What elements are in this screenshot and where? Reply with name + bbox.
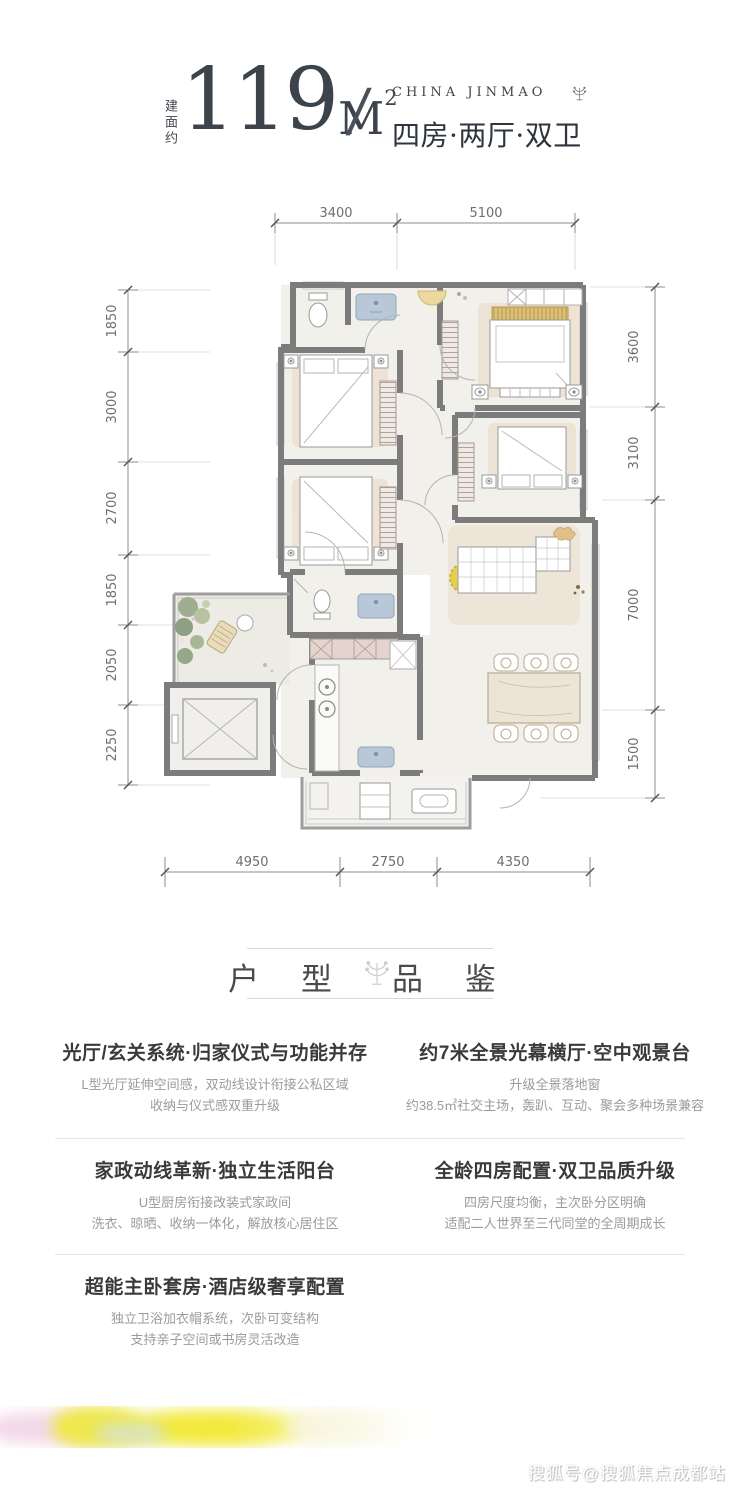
feature-title: 光厅/玄关系统·归家仪式与功能并存: [55, 1038, 375, 1065]
feature-block-4: 全龄四房配置·双卫品质升级 四房尺度均衡，主次卧分区明确 适配二人世界至三代同堂…: [390, 1156, 720, 1234]
poster-page: 建面约 119 M 2 / CHINA JINMAO 四房·两厅·双卫: [0, 0, 740, 1494]
floorplan-svg: 3400 5100 1850 3000 2700 1850 2050 2250: [60, 195, 680, 900]
dim-label-top-2: 5100: [469, 206, 502, 221]
section-title-left: 户 型: [228, 954, 348, 999]
feature-line: 收纳与仪式感双重升级: [150, 1098, 280, 1113]
feature-title: 全龄四房配置·双卫品质升级: [390, 1156, 720, 1183]
dim-label-bottom-2: 2750: [371, 855, 404, 870]
feature-line: 约38.5㎡社交主场，轰趴、互动、聚会多种场景兼容: [406, 1098, 704, 1113]
feature-line: 适配二人世界至三代同堂的全周期成长: [444, 1216, 665, 1231]
dimension-top: 3400 5100: [271, 206, 579, 270]
dim-label-bottom-1: 4950: [235, 855, 268, 870]
feature-block-2: 约7米全景光幕横厅·空中观景台 升级全景落地窗 约38.5㎡社交主场，轰趴、互动…: [390, 1038, 720, 1116]
feature-block-3: 家政动线革新·独立生活阳台 U型厨房衔接改装式家政间 洗衣、晾晒、收纳一体化，解…: [55, 1156, 375, 1234]
dim-label-left-6: 2250: [105, 728, 120, 761]
feature-line: 支持亲子空间或书房灵活改造: [130, 1332, 299, 1347]
dimension-bottom: 4950 2750 4350: [161, 855, 594, 887]
feature-line: 洗衣、晾晒、收纳一体化，解放核心居住区: [91, 1216, 338, 1231]
dim-label-left-4: 1850: [105, 573, 120, 606]
brand-name: CHINA JINMAO: [392, 85, 546, 100]
brand-row: CHINA JINMAO: [392, 85, 588, 107]
title-rule-bottom: [247, 998, 493, 999]
dim-label-top-1: 3400: [319, 206, 352, 221]
header: 建面约 119 M 2 / CHINA JINMAO 四房·两厅·双卫: [0, 0, 740, 195]
feature-divider: [55, 1138, 685, 1139]
feature-block-5: 超能主卧套房·酒店级奢享配置 独立卫浴加衣帽系统，次卧可变结构 支持亲子空间或书…: [55, 1272, 375, 1350]
feature-line: 升级全景落地窗: [509, 1077, 600, 1092]
dim-label-bottom-3: 4350: [496, 855, 529, 870]
feature-title: 约7米全景光幕横厅·空中观景台: [390, 1038, 720, 1065]
watermark: 搜狐号@搜狐焦点成都站: [528, 1459, 726, 1484]
floorplan: 3400 5100 1850 3000 2700 1850 2050 2250: [60, 195, 680, 905]
dim-label-left-2: 3000: [105, 390, 120, 423]
dim-label-left-5: 2050: [105, 648, 120, 681]
feature-list: 光厅/玄关系统·归家仪式与功能并存 L型光厅延伸空间感，双动线设计衔接公私区域 …: [0, 1028, 740, 1378]
dim-label-right-4: 1500: [627, 737, 642, 770]
area-prefix-label: 建面约: [160, 99, 179, 147]
brand-block: CHINA JINMAO 四房·两厅·双卫: [392, 85, 588, 154]
feature-line: 独立卫浴加衣帽系统，次卧可变结构: [111, 1311, 319, 1326]
dim-label-right-3: 7000: [627, 588, 642, 621]
feature-line: L型光厅延伸空间感，双动线设计衔接公私区域: [81, 1077, 348, 1092]
title-rule-top: [247, 948, 493, 949]
jinmao-logo-icon: [571, 85, 588, 107]
feature-title: 家政动线革新·独立生活阳台: [55, 1156, 375, 1183]
hallway-closet: [310, 639, 398, 659]
feature-divider: [55, 1254, 685, 1255]
section-title-right: 品 鉴: [392, 954, 512, 999]
feature-block-1: 光厅/玄关系统·归家仪式与功能并存 L型光厅延伸空间感，双动线设计衔接公私区域 …: [55, 1038, 375, 1116]
feature-line: 四房尺度均衡，主次卧分区明确: [464, 1195, 646, 1210]
feature-line: U型厨房衔接改装式家政间: [139, 1195, 291, 1210]
apartment-type: 四房·两厅·双卫: [392, 114, 588, 154]
dim-label-left-1: 1850: [105, 304, 120, 337]
watercolor-strip: [0, 1406, 462, 1448]
dim-label-left-3: 2700: [105, 491, 120, 524]
dim-label-right-1: 3600: [627, 330, 642, 363]
dim-label-right-2: 3100: [627, 436, 642, 469]
area-number: 119: [181, 52, 336, 148]
section-title: 户 型 品 鉴: [0, 930, 740, 1014]
feature-title: 超能主卧套房·酒店级奢享配置: [55, 1272, 375, 1299]
jinmao-logo-icon: [362, 958, 392, 996]
elevator: [167, 685, 273, 773]
